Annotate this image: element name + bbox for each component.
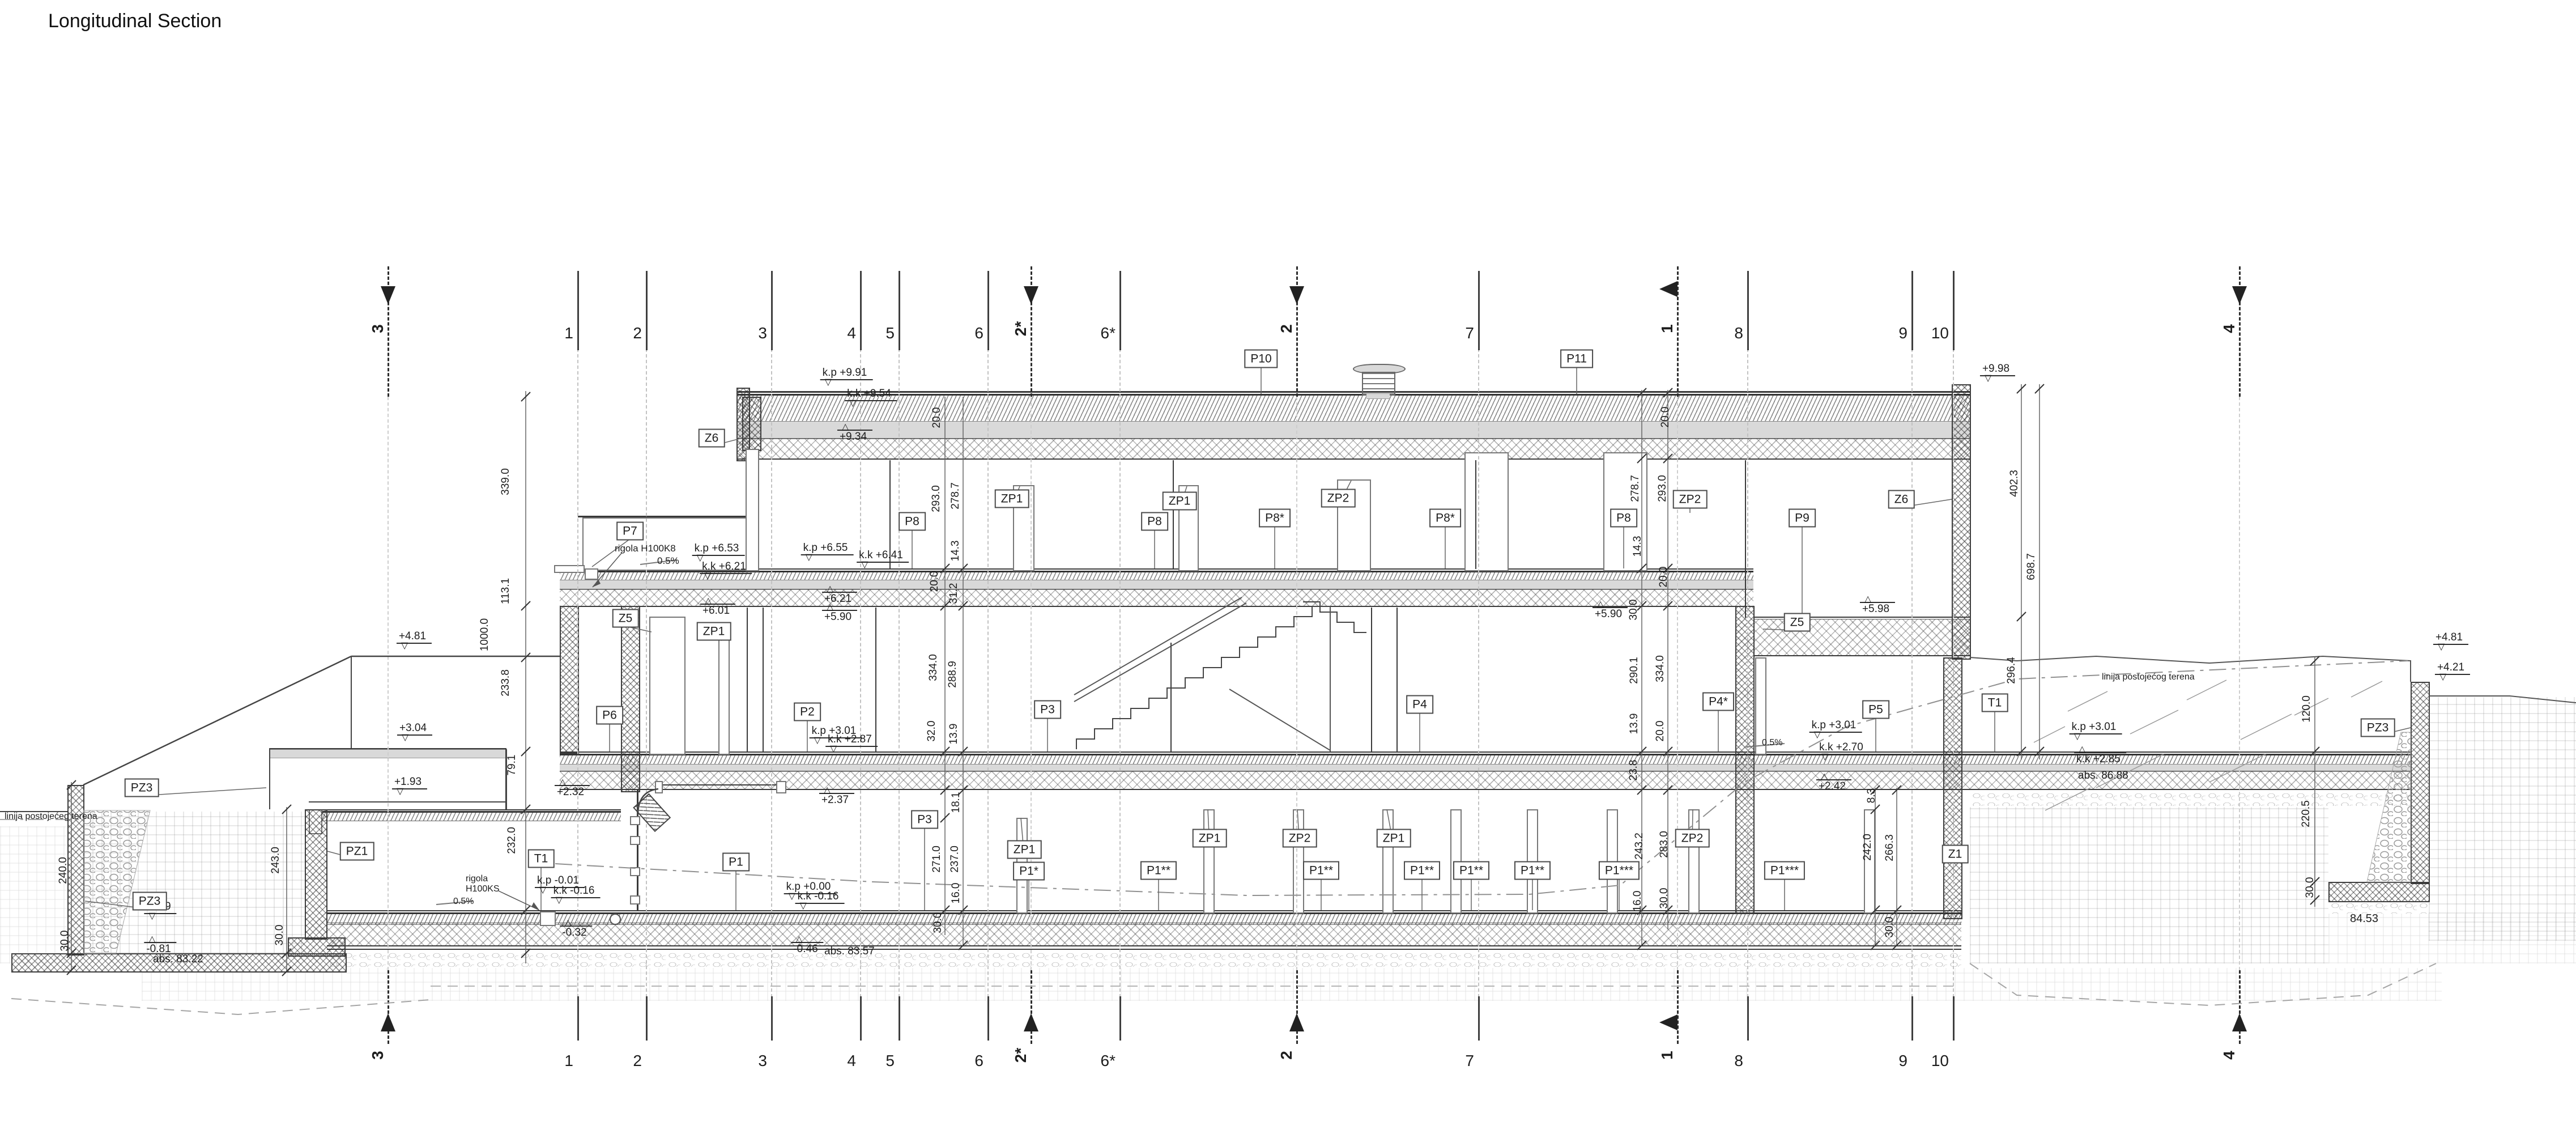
soil-far-left [0,826,67,963]
glass-door-z5 [649,617,685,755]
dimension: 698.7 [2025,553,2038,580]
wall-midfloor-left [560,606,579,754]
dimension: 232.0 [506,827,518,854]
drawing-element [1229,689,1330,750]
section-arrow-top [381,286,395,304]
label-box-p1: P1 [722,853,750,872]
drawing-element: +2.32 [555,785,590,799]
dimension: 266.3 [1884,834,1896,861]
label-box-p1sss: P1*** [1764,861,1805,880]
wall-pz1 [305,809,327,940]
label-box-p2: P2 [794,703,821,721]
grid-label-bottom: 4 [847,1052,856,1070]
drawing-element: ▽ [401,643,432,649]
dimension: 237.0 [949,846,961,873]
dimension: 334.0 [1654,655,1667,682]
garage-door-rail [656,784,783,785]
drawing-element: ▽ [2074,733,2122,740]
level-mark: k.k +6.21▽ [700,560,752,580]
door-roller [630,867,640,876]
label-box-t1: T1 [528,850,555,868]
drawing-element: ▽ [402,734,432,741]
section-line-bottom [1031,970,1032,1044]
grid-line-bottom [860,996,862,1041]
page-title: Longitudinal Section [48,10,222,32]
grid-line-bottom [771,996,773,1041]
grid-line [646,286,647,1037]
annotation-text: 0.5% [453,897,474,907]
dimension: 113.1 [500,578,512,604]
rigola-notch-bottom [540,911,556,926]
grid-label-bottom: 9 [1898,1052,1907,1070]
label-box-p4s: P4* [1702,693,1734,711]
grid-label-bottom: 3 [758,1052,767,1070]
roof-layer [736,421,1970,439]
dimension: 30.0 [1628,600,1640,621]
drawing-element: ▽ [556,897,601,904]
grid-line-top [860,271,862,350]
partition [747,608,748,753]
grid-line-bottom [1911,996,1913,1041]
dimension: 14.3 [1632,536,1644,557]
grid-line [1911,286,1913,1037]
grid-line-top [646,271,648,350]
dimension: 31.2 [948,583,960,604]
grid-line-bottom [1478,996,1480,1041]
level-mark: △-0.46 [791,936,823,956]
section-arrow-bottom [1659,1014,1677,1030]
wall-front [621,606,640,792]
dimension: 233.8 [500,669,512,697]
level-mark: k.k -0.16▽ [795,890,845,910]
section-arrow-top [1289,286,1304,304]
label-box-p1ss: P1** [1404,861,1440,880]
grid-line-top [771,271,773,350]
drawing-element [1076,606,1330,749]
roof-screed [736,394,1970,423]
drawing-element: +6.01 [700,604,735,617]
drawing-element: -0.81 [144,942,176,956]
level-mark: +9.98▽ [1980,363,2015,382]
footing-pz3-right [2328,882,2430,902]
label-box-p8s: P8* [1259,509,1291,528]
drawing-element: ▽ [830,746,878,753]
door-frame [1382,809,1394,914]
level-mark: k.k +2.87▽ [825,733,878,753]
section-arrow-bottom [2232,1013,2247,1031]
dimension: 220.5 [2300,800,2313,827]
dimension: 8.3 [1866,788,1878,803]
grid-label-bottom: 6* [1101,1052,1115,1070]
label-box-z6: Z6 [1888,490,1915,509]
drawing-element: +2.42 [1816,779,1851,793]
door-roller [630,895,640,905]
annotation-text: 0.5% [657,555,679,567]
window-frame [1864,809,1875,914]
roof-insulation [736,438,1970,460]
label-box-p1sss: P1*** [1599,861,1640,880]
drawing-element: ▽ [2439,674,2470,681]
door-roller [630,816,640,825]
grid-line [1119,286,1121,1037]
partition [1396,608,1398,753]
level-mark: k.k -0.16▽ [551,885,601,904]
level-mark: △k.k +2.85 [2074,746,2126,766]
partition [1745,460,1746,618]
label-box-zp1: ZP1 [1193,829,1227,848]
dimension: 30.0 [1884,917,1896,938]
level-mark: k.p +3.01▽ [1809,719,1862,738]
annotation-text: rigola H100KS [466,874,500,894]
label-box-p1ss: P1** [1453,861,1489,880]
label-box-zp1: ZP1 [1007,840,1042,859]
dimension: 242.0 [1862,834,1874,861]
drawing-element: +2.37 [819,793,854,806]
label-box-p9: P9 [1789,509,1816,528]
label-box-p8: P8 [899,512,926,531]
label-box-zp1: ZP1 [995,490,1029,508]
label-box-z6: Z6 [699,429,725,448]
section-line-mid [2239,397,2240,970]
wall-pz3-right [2411,682,2430,884]
level-mark: k.p +9.91▽ [820,367,873,386]
floor2-bottom-line [560,606,1753,607]
drawing-element [142,788,266,796]
level-mark: △+5.98 [1860,596,1895,615]
dimension: 30.0 [274,925,286,946]
wall-grid8 [1735,606,1755,914]
stair-wall [1170,643,1172,753]
dimension: 20.0 [929,571,941,592]
drawing-element: -0.32 [560,925,592,939]
annotation-text: abs. 86.88 [2078,770,2128,782]
drawing-element: ▽ [825,379,873,386]
drawing-element: ▽ [2438,644,2468,651]
section-line-mid [1031,397,1032,970]
level-mark: k.k +2.70▽ [1817,741,1869,761]
label-box-p1s: P1* [1013,862,1045,881]
dimension: 20.0 [1659,407,1672,428]
parapet-cap [554,565,585,573]
dimension: 293.0 [930,485,943,512]
drawing-element: ▽ [1821,754,1869,761]
dimension: 16.0 [1632,891,1644,912]
label-box-p1ss: P1** [1303,861,1339,880]
grid-line-top [987,271,989,350]
dimension: 243.2 [1633,833,1646,860]
drawing-element: ▽ [861,562,909,568]
grid-line-top [1953,271,1955,350]
label-box-zp1: ZP1 [1163,492,1197,511]
drawing-element: ▽ [148,913,176,920]
ground-gravel [327,951,1961,967]
label-box-p1ss: P1** [1514,861,1551,880]
dimension: 402.3 [2008,470,2021,497]
level-mark: +4.81▽ [2433,631,2468,651]
label-box-p3: P3 [911,810,938,829]
section-line-bottom [388,970,389,1044]
drawing-element: ▽ [849,400,897,407]
grid-line-top [1119,271,1121,350]
label-box-p5: P5 [1862,700,1889,719]
annotation-text: abs. 83.57 [824,945,875,958]
label-box-p7: P7 [616,522,644,541]
label-box-p8: P8 [1610,509,1637,528]
drawing-element [1074,603,1246,702]
level-mark: △+6.01 [700,598,735,617]
canopy-top [309,809,621,810]
dimension: 16.0 [950,883,963,904]
grid-line [1478,286,1479,1037]
section-label-top: 1 [1658,324,1676,333]
dimension: 293.0 [1657,475,1669,502]
section-label-top: 4 [2220,324,2238,333]
dimension: 13.9 [1628,714,1641,734]
section-arrow-top [2232,286,2247,304]
level-mark: △+5.90 [822,604,857,623]
rigola-notch-top [585,568,598,580]
partition [1475,460,1476,569]
label-box-p3: P3 [1034,700,1061,719]
level-mark: △-0.32 [560,920,592,939]
terrace-railing-top [578,516,754,517]
grid-label-bottom: 6 [974,1052,983,1070]
drawing-element: +5.90 [822,610,857,623]
grid-label-top: 4 [847,324,856,342]
grid-line [899,286,900,1037]
label-box-zp2: ZP2 [1321,489,1356,508]
annotation-text: 0.5% [1762,738,1782,748]
section-label-bottom: 2* [1012,1048,1030,1063]
dimension: 296.4 [2006,657,2018,684]
dimension: 278.7 [1629,475,1642,502]
annotation-text: 84.53 [2350,912,2378,925]
label-box-z5: Z5 [1784,613,1811,632]
level-mark: +4.81▽ [397,630,432,649]
level-mark: +3.04▽ [397,722,432,741]
ground-membrane-line [327,945,1961,946]
drawing-element: ▽ [806,554,854,561]
drawing-element: ▽ [800,903,845,910]
level-mark: △+2.42 [1816,774,1851,793]
dimension: 32.0 [926,721,938,742]
drawing-element: +9.34 [837,430,872,443]
terrace-gravel [1970,791,2411,806]
grid-label-top: 2 [633,324,642,342]
grid-label-top: 7 [1465,324,1474,342]
level-mark: k.p +6.55▽ [801,542,854,561]
label-box-zp2: ZP2 [1675,829,1710,848]
annotation-text: linija postojećog terena [2102,672,2195,682]
dimension: 1000.0 [479,618,491,651]
partition [1371,608,1372,753]
dimension: 30.0 [2304,877,2317,898]
drawing-element [1074,597,1242,695]
section-label-bottom: 2 [1278,1051,1296,1060]
drawing-element: ▽ [1814,732,1862,738]
canopy-screed [309,811,621,821]
soil-under-building [142,968,2442,1001]
grid-line-top [1747,271,1749,350]
dimension: 290.1 [1628,657,1641,684]
section-arrow-bottom [1024,1013,1038,1031]
grid-label-top: 9 [1898,324,1907,342]
grid-label-top: 8 [1734,324,1743,342]
grid-label-top: 6* [1101,324,1115,342]
grid-label-top: 10 [1931,324,1949,342]
section-label-bottom: 4 [2220,1051,2238,1060]
section-arrow-bottom [381,1013,395,1031]
grid-line-top [577,271,579,350]
drawing-element [499,891,539,910]
door-roller [630,836,640,845]
rail-bracket [776,781,786,793]
drawing-element [634,794,670,831]
label-box-p1ss: P1** [1140,861,1177,880]
grid-line-bottom [577,996,579,1041]
dimension: 30.0 [1658,888,1671,909]
label-box-pz3: PZ3 [2361,719,2395,737]
grid-line-bottom [646,996,648,1041]
level-mark: +1.93▽ [392,776,427,795]
section-line-mid [1677,397,1678,970]
grid-label-top: 3 [758,324,767,342]
dimension: 288.9 [947,661,959,688]
label-box-z1: Z1 [1942,845,1969,864]
wall-topfloor-left [742,397,761,451]
partition [1173,460,1174,569]
section-line-mid [1296,397,1297,970]
grid-label-bottom: 2 [633,1052,642,1070]
roof-top-line [736,391,1970,393]
grid-label-top: 1 [564,324,573,342]
grid-line-top [1911,271,1913,350]
drawing-element [531,902,539,910]
dimension: 18.1 [950,792,963,813]
dimension: 240.0 [57,857,70,884]
grid-line-bottom [1119,996,1121,1041]
soil-right-of-wall [2429,697,2576,941]
garage-door-guide [637,790,638,910]
label-box-zp1: ZP1 [1377,829,1411,848]
level-mark: △+2.37 [819,787,854,806]
label-box-zp2: ZP2 [1673,490,1708,509]
section-arrow-top [1024,286,1038,304]
grid-label-bottom: 5 [885,1052,895,1070]
label-box-p8: P8 [1141,512,1168,531]
label-box-zp1: ZP1 [697,622,731,641]
label-box-p4: P4 [1406,695,1433,714]
level-mark: △-0.81 [144,936,176,956]
drawing-sheet: Longitudinal Section [0,0,2576,1138]
section-label-top: 2 [1278,324,1296,333]
dimension: 339.0 [500,468,512,495]
grid-line [1747,286,1748,1037]
label-box-pz1: PZ1 [340,842,374,861]
rail-bracket [655,781,663,793]
grid-line [771,286,772,1037]
dimension: 20.0 [931,407,943,428]
grid-line-bottom [1747,996,1749,1041]
dimension: 278.7 [949,482,962,509]
partition [763,608,764,753]
roof-vent [1362,372,1395,396]
dimension: 30.0 [59,931,71,952]
door-frame [1688,809,1700,914]
section-label-bottom: 3 [369,1051,387,1060]
dimension: 271.0 [931,846,943,873]
level-mark: +4.21▽ [2435,661,2470,681]
grid-label-bottom: 7 [1465,1052,1474,1070]
garage-door-rail [656,789,783,790]
label-box-t1: T1 [1982,694,2008,712]
door-frame [718,622,730,755]
level-mark: △+2.32 [555,779,590,799]
section-line-bottom [1296,970,1298,1044]
label-box-z5: Z5 [612,609,639,628]
level-mark: k.k +6.41▽ [857,549,909,568]
dimension: 23.8 [1628,760,1640,781]
grid-line-bottom [1953,996,1955,1041]
label-box-zp2: ZP2 [1283,829,1317,848]
grid-label-bottom: 10 [1931,1052,1949,1070]
drawing-element: -0.46 [791,942,823,956]
window-frame [1464,452,1509,571]
door-frame [1203,809,1215,914]
section-label-bottom: 1 [1658,1051,1676,1060]
level-mark: △+9.34 [837,424,872,443]
label-box-pz3: PZ3 [125,779,159,797]
drawing-element: k.k +2.85 [2074,752,2126,766]
level-mark: k.k +9.54▽ [845,388,897,407]
label-box-p8s: P8* [1429,509,1461,528]
drawing-element: ▽ [1985,375,2015,382]
grid-line-top [899,271,900,350]
dimension: 30.0 [932,912,944,933]
section-arrow-bottom [1289,1013,1304,1031]
drawing-element: ▽ [704,573,752,580]
grid-line [987,286,989,1037]
slab598-bottom [1753,655,1970,656]
partition [875,608,876,753]
vent-base [1366,393,1390,399]
dimension: 334.0 [927,654,940,681]
dimension: 243.0 [270,847,282,874]
label-box-pz3: PZ3 [133,892,167,911]
dimension: 120.0 [2301,695,2313,723]
grid-line-bottom [899,996,900,1041]
ground-top-line [327,910,1961,911]
grid-line-bottom [987,996,989,1041]
dimension: 79.1 [506,755,518,776]
dimension: 13.9 [948,724,960,745]
annotation-text: linija postojećeg terena [5,812,97,822]
dimension: 283.0 [1658,831,1671,858]
level-mark: k.p +3.01▽ [2070,721,2122,740]
grid-line-top [1478,271,1480,350]
grid-label-top: 6 [974,324,983,342]
drawing-element: +5.98 [1860,602,1895,615]
drawing-element: ▽ [397,788,427,795]
annotation-text: rigola H100K8 [615,543,676,554]
grid-label-bottom: 1 [564,1052,573,1070]
window-z6-left [746,449,759,571]
level-mark: △+5.90 [1593,601,1628,621]
ground-bottom-line [327,949,1961,950]
section-line-bottom [1677,970,1679,1044]
drawing-element: +5.90 [1593,607,1628,621]
grid-label-bottom: 8 [1734,1052,1743,1070]
